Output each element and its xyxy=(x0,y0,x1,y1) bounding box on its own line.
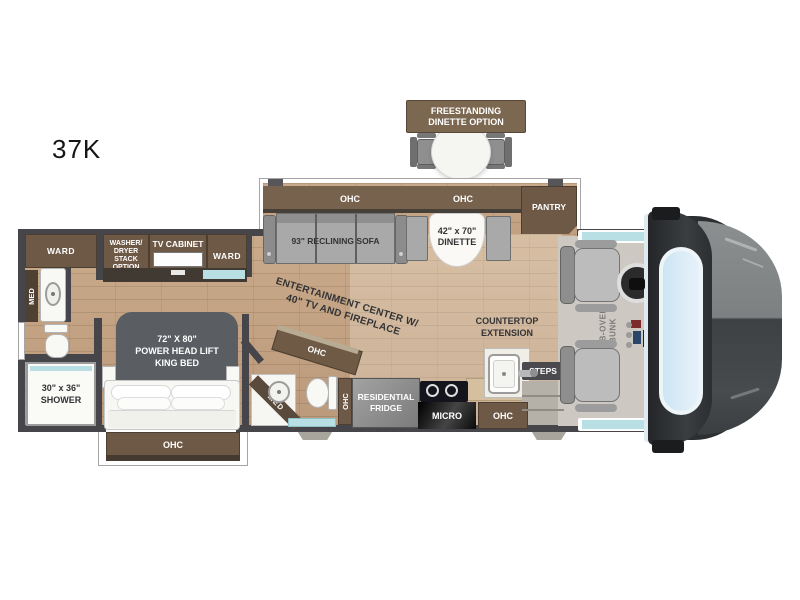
rv-floorplan-37k: 37K FREESTANDING DINETTE OPTION OHC OHC … xyxy=(0,0,800,600)
countertop-extension-label: COUNTERTOP EXTENSION xyxy=(461,314,553,342)
tv-cabinet-label: TV CABINET xyxy=(145,238,211,250)
tv-cabinet-shelf xyxy=(171,270,185,275)
entry-step-edge xyxy=(522,409,564,411)
bedroom-overhead-cabinet-label: OHC xyxy=(163,440,183,450)
entertainment-ohc-label: OHC xyxy=(306,343,327,358)
option-chair-left-back xyxy=(410,137,417,167)
overhead-cabinet-label-left: OHC xyxy=(290,191,410,207)
dinette-label: 42" x 70" DINETTE xyxy=(424,224,490,250)
rear-bath-sink-drain xyxy=(51,292,55,296)
fridge-line1: RESIDENTIAL xyxy=(358,392,415,403)
midbath-overhead-cabinet: OHC xyxy=(338,378,352,425)
dinette-label-line1: 42" x 70" xyxy=(438,226,477,237)
console-knob xyxy=(626,342,632,348)
rear-wardrobe: WARD xyxy=(25,234,97,268)
passenger-seat-armrest xyxy=(575,240,617,248)
shower-label-line2: SHOWER xyxy=(41,395,82,407)
king-bed-line1: 72" X 80" xyxy=(157,334,197,346)
midbath-toilet-tank xyxy=(328,376,337,410)
wall-bath-divider-top xyxy=(96,233,103,280)
midbath-sink-drain xyxy=(277,390,281,394)
rear-medicine-cabinet: MED xyxy=(25,270,38,322)
washer-dryer-line2: DRYER xyxy=(114,248,138,256)
console-module xyxy=(631,320,641,328)
freestanding-dinette-label-line2: DINETTE OPTION xyxy=(428,117,504,128)
kitchen-sink-drain xyxy=(502,372,506,376)
front-cap-top-tab xyxy=(652,207,680,220)
pantry-label: PANTRY xyxy=(521,200,577,214)
overhead-cabinet-label-right: OHC xyxy=(408,191,518,207)
countertop-line1: COUNTERTOP xyxy=(476,316,539,328)
front-cap-bottom-tab xyxy=(652,440,684,453)
midbath-ohc-label: OHC xyxy=(341,393,350,410)
cooktop-burner xyxy=(445,384,458,397)
passenger-seat xyxy=(574,248,620,302)
sofa-recline-hinge xyxy=(398,251,404,257)
passenger-seat-armrest xyxy=(575,304,617,312)
cab-window-bottom xyxy=(582,420,648,429)
washer-dryer-line3: STACK xyxy=(114,256,138,264)
rear-toilet xyxy=(45,334,69,358)
driver-seat-back xyxy=(560,346,575,404)
tv-screen xyxy=(153,252,203,267)
option-chair-left-armrest xyxy=(417,133,436,138)
windshield xyxy=(663,251,699,411)
bedroom-overhead-cabinet: OHC xyxy=(106,432,240,457)
console-screen xyxy=(633,331,641,344)
kitchen-faucet-head xyxy=(530,369,538,377)
freestanding-dinette-label-line1: FREESTANDING xyxy=(431,106,501,117)
slideout-corner-cap xyxy=(548,179,563,187)
shower-label: 30" x 36" SHOWER xyxy=(28,380,94,410)
midbath-window xyxy=(288,418,336,427)
king-bed-label: 72" X 80" POWER HEAD LIFT KING BED xyxy=(116,332,238,372)
rear-wall-window xyxy=(18,322,25,360)
cooktop-burner xyxy=(426,384,439,397)
microwave: MICRO xyxy=(418,402,476,429)
bedroom-slideout-fascia xyxy=(106,455,240,461)
driver-seat-armrest xyxy=(575,340,617,348)
residential-fridge: RESIDENTIAL FRIDGE xyxy=(352,378,420,428)
bed-blanket xyxy=(108,410,236,428)
passenger-seat-back xyxy=(560,246,575,304)
bedroom-window xyxy=(203,270,245,279)
shower-glass-door xyxy=(30,366,92,371)
sofa-recline-hinge xyxy=(266,251,272,257)
wall-bedroom-front xyxy=(242,314,249,428)
entry-step-edge xyxy=(522,395,564,397)
rear-toilet-tank xyxy=(44,324,68,333)
bedroom-wardrobe-label: WARD xyxy=(213,251,241,261)
countertop-line2: EXTENSION xyxy=(481,328,533,340)
wall-bottom-rear xyxy=(18,425,106,432)
bed-pillow xyxy=(171,397,225,410)
driver-seat xyxy=(574,348,620,402)
steering-wheel-hub xyxy=(629,278,645,290)
option-chair-right-back xyxy=(505,137,512,167)
driver-seat-armrest xyxy=(575,404,617,412)
kitchen-ohc-label: OHC xyxy=(493,411,513,421)
king-bed-line3: KING BED xyxy=(155,358,199,370)
kitchen-overhead-cabinet: OHC xyxy=(478,402,528,429)
bed-pillow xyxy=(117,397,171,410)
washer-dryer-line1: WASHER/ xyxy=(110,240,143,248)
option-chair-right-armrest xyxy=(486,133,505,138)
shower-label-line1: 30" x 36" xyxy=(42,383,81,395)
microwave-label: MICRO xyxy=(432,411,462,421)
rear-medicine-cabinet-label: MED xyxy=(27,288,36,305)
sofa-backrest xyxy=(277,214,394,223)
sofa-label: 93" RECLINING SOFA xyxy=(276,233,395,249)
dinette-label-line2: DINETTE xyxy=(438,237,477,248)
console-knob xyxy=(626,332,632,338)
floorplan-model-label: 37K xyxy=(52,134,101,165)
midbath-toilet xyxy=(306,378,329,408)
freestanding-dinette-option: FREESTANDING DINETTE OPTION xyxy=(406,100,526,133)
rear-wardrobe-label: WARD xyxy=(47,246,75,256)
king-bed-line2: POWER HEAD LIFT xyxy=(135,346,219,358)
fridge-line2: FRIDGE xyxy=(370,403,402,414)
console-knob xyxy=(626,322,632,328)
